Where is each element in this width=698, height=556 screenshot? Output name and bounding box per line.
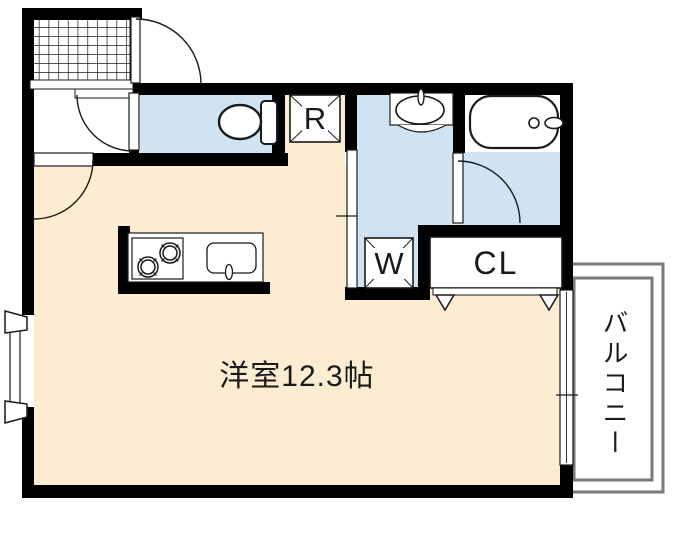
hall-door-leaf	[34, 153, 93, 166]
genkan-step-edge	[30, 80, 133, 89]
balcony-label: バルコニー	[599, 300, 629, 468]
wall-left-upper	[22, 8, 34, 315]
washer-symbol-label: W	[365, 238, 413, 288]
toilet-bowl	[219, 105, 261, 139]
main-room-label: 洋室12.3帖	[157, 357, 437, 397]
kitchen-sink-faucet	[226, 265, 233, 280]
wall-washroom-left	[345, 83, 357, 152]
toilet-tank	[261, 101, 277, 144]
toilet-door-arc	[77, 95, 133, 151]
wall-washroom-bathroom	[453, 83, 465, 153]
wall-closet-left	[418, 225, 430, 288]
wall-top-genkan	[22, 8, 142, 20]
kitchen-counter	[128, 233, 263, 282]
wall-left-lower	[22, 407, 34, 498]
washer-symbol-text: W	[372, 248, 405, 279]
toilet-doorway	[129, 93, 139, 150]
bathroom-door-leaf	[453, 153, 463, 223]
refrigerator-symbol-label: R	[290, 95, 340, 142]
wall-hall-toilet-bottom	[93, 153, 288, 166]
wall-closet-top	[430, 225, 573, 237]
window-sash	[10, 327, 20, 407]
closet-label: CL	[430, 237, 562, 288]
bathtub-faucet	[545, 118, 563, 129]
toilet-door-leaf-open	[75, 89, 133, 98]
genkan-step	[30, 80, 133, 98]
washbasin-faucet	[418, 89, 424, 105]
left-window	[5, 311, 34, 423]
refrigerator-symbol-text: R	[302, 103, 328, 134]
washbasin-fixture	[390, 89, 453, 132]
entrance-door-arc	[136, 19, 201, 84]
floor-plan: 洋室12.3帖 バルコニー R W CL	[0, 0, 698, 556]
washroom-sliding-door	[347, 150, 357, 288]
floor-plan-drawing	[0, 0, 698, 556]
wall-bottom	[22, 485, 573, 498]
genkan-tile-floor	[33, 17, 130, 80]
wall-kitchen-bottom	[118, 282, 270, 294]
bathtub-fixture	[470, 96, 563, 148]
entrance-door-leaf	[131, 17, 140, 83]
wall-washroom-bottom	[345, 287, 430, 300]
bathtub-drain	[529, 118, 539, 128]
closet-door-track	[433, 288, 557, 295]
